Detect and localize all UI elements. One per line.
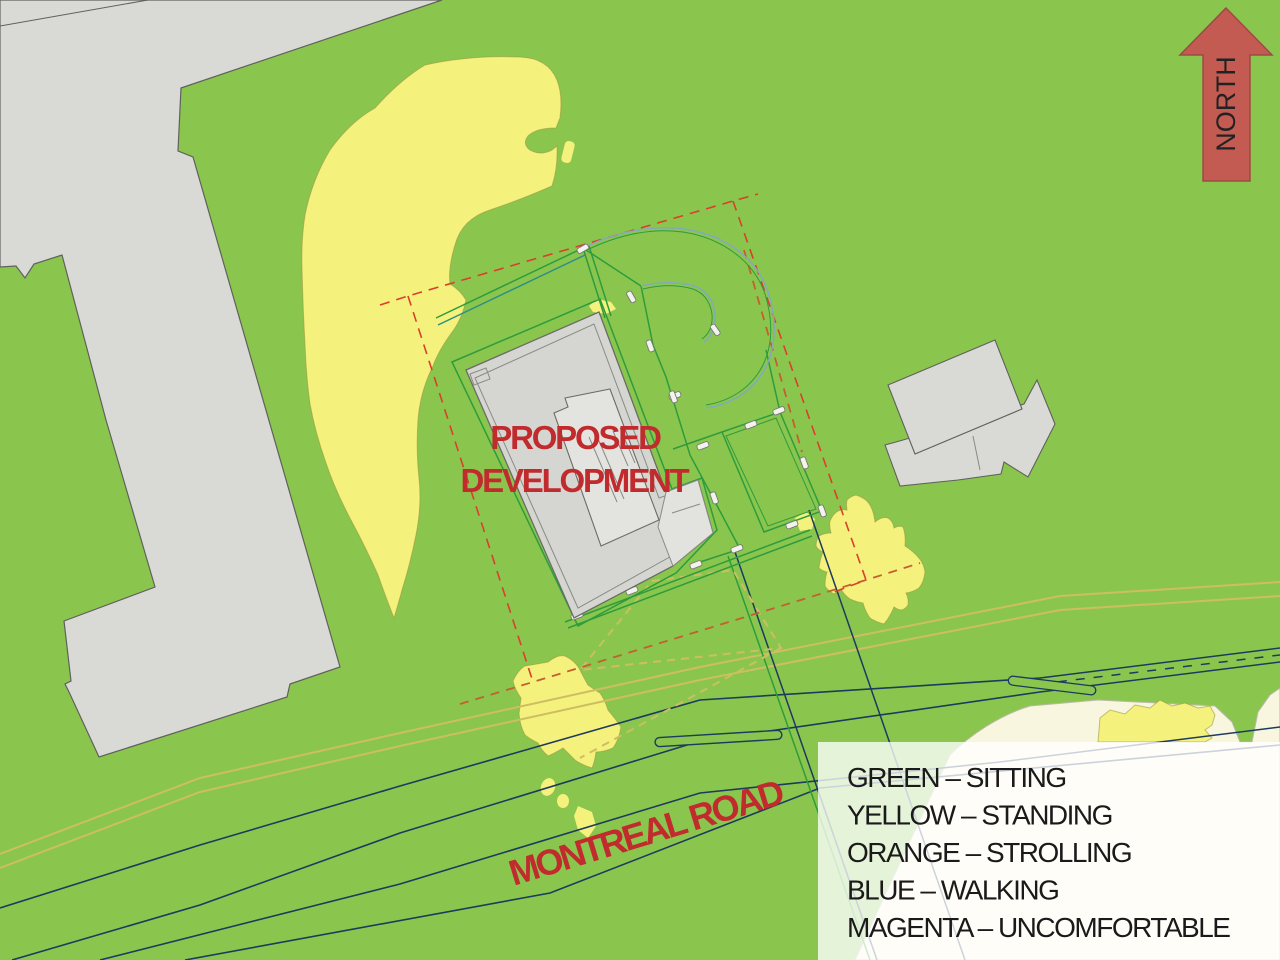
- svg-text:ORANGE – STROLLING: ORANGE – STROLLING: [847, 837, 1131, 868]
- svg-text:PROPOSED: PROPOSED: [490, 419, 661, 456]
- svg-text:GREEN – SITTING: GREEN – SITTING: [847, 762, 1066, 793]
- svg-text:DEVELOPMENT: DEVELOPMENT: [461, 462, 690, 499]
- svg-text:MAGENTA – UNCOMFORTABLE: MAGENTA – UNCOMFORTABLE: [847, 912, 1230, 943]
- svg-text:NORTH: NORTH: [1211, 56, 1241, 152]
- svg-text:YELLOW – STANDING: YELLOW – STANDING: [847, 800, 1112, 831]
- svg-text:BLUE – WALKING: BLUE – WALKING: [847, 875, 1058, 906]
